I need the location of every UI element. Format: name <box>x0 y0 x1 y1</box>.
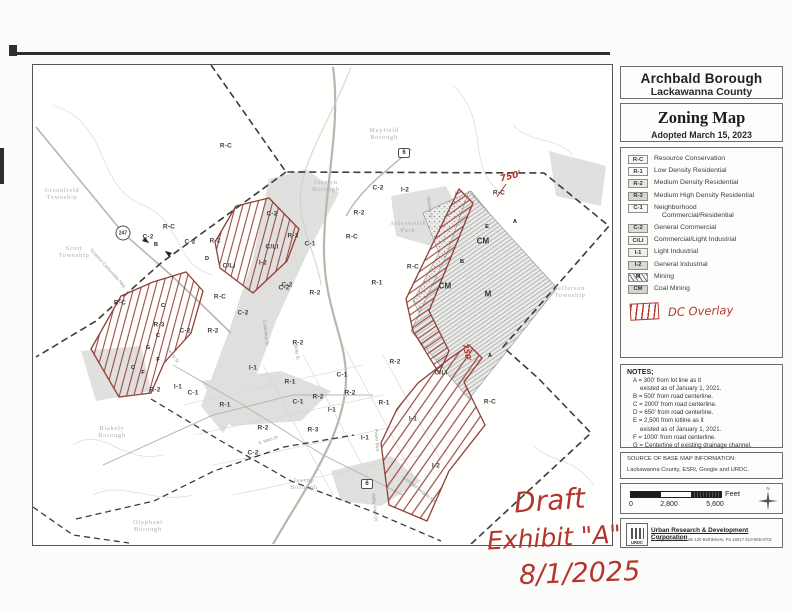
legend-label: Resource Conservation <box>654 155 725 164</box>
legend-item: R-3Medium High Density Residential <box>628 192 782 201</box>
legend-item: I-2General Industrial <box>628 261 782 270</box>
legend-swatch: R-2 <box>628 179 648 188</box>
scale-panel: Feet 02,8005,600 N <box>620 483 783 514</box>
borough-title: Archbald Borough <box>621 71 782 86</box>
legend-label: NeighborhoodCommercial/Residential <box>654 204 734 221</box>
credit-address: 51 Highland Ave Suite 120 Bethlehem, Pa … <box>651 537 772 542</box>
legend-label: Low Density Residential <box>654 167 727 176</box>
north-arrow-icon: N <box>757 486 779 512</box>
legend-swatch: M <box>628 273 648 282</box>
scale-bar <box>630 491 722 498</box>
scale-unit: Feet <box>725 489 740 498</box>
base-map-drawing <box>33 65 612 544</box>
note-line: A = 300' from lot line as it <box>627 377 782 385</box>
urdc-logo: URDC <box>626 523 648 546</box>
legend-label: Coal Mining <box>654 285 690 294</box>
scale-bar-segment <box>631 492 660 497</box>
legend-swatch: R-3 <box>628 192 648 201</box>
dc-overlay-label: DC Overlay <box>668 303 734 319</box>
adoption-date: Adopted March 15, 2023 <box>621 130 782 140</box>
map-canvas <box>32 64 613 546</box>
scale-tick: 5,600 <box>706 501 724 508</box>
notes-lines: A = 300' from lot line as itexisted as o… <box>627 377 782 450</box>
source-heading: SOURCE OF BASE MAP INFORMATION: <box>627 456 782 462</box>
legend-item: I-1Light Industrial <box>628 248 782 257</box>
urdc-logo-text: URDC <box>631 540 643 545</box>
legend-swatch: R-C <box>628 155 648 164</box>
legend-list: R-CResource ConservationR-1Low Density R… <box>628 155 782 294</box>
legend-item: C/LICommercial/Light Industrial <box>628 236 782 245</box>
source-panel: SOURCE OF BASE MAP INFORMATION: Lackawan… <box>620 452 783 479</box>
legend-swatch: C-2 <box>628 224 648 233</box>
notes-panel: NOTES; A = 300' from lot line as itexist… <box>620 364 783 448</box>
legend-label: General Industrial <box>654 261 708 270</box>
compass-star-icon <box>758 491 778 511</box>
legend-swatch: R-1 <box>628 167 648 176</box>
scan-artifact-corner-mark <box>9 45 17 56</box>
legend-label: Mining <box>654 273 674 282</box>
handwritten-date: 8/1/2025 <box>518 556 640 591</box>
note-line: D = 650' from road centerline. <box>627 409 782 417</box>
legend-item: R-2Medium Density Residential <box>628 179 782 188</box>
notes-heading: NOTES; <box>627 369 782 376</box>
legend-swatch: CM <box>628 285 648 294</box>
dc-overlay-row: DC Overlay <box>628 303 782 320</box>
legend-item: MMining <box>628 273 782 282</box>
scanned-zoning-map-page: Archbald Borough Lackawanna County Zonin… <box>0 0 792 612</box>
note-line: F = 1000' from road centerline. <box>627 434 782 442</box>
scan-artifact-edge-mark <box>0 148 4 184</box>
note-line: existed as of January 1, 2021. <box>627 385 782 393</box>
legend-swatch: I-1 <box>628 248 648 257</box>
legend-label: Medium Density Residential <box>654 179 738 188</box>
legend-item: R-1Low Density Residential <box>628 167 782 176</box>
map-title-panel: Zoning Map Adopted March 15, 2023 <box>620 103 783 142</box>
legend-label: Light Industrial <box>654 248 698 257</box>
dc-overlay-hatch-sketch <box>630 302 660 320</box>
urdc-building-icon <box>631 528 644 539</box>
legend-swatch: I-2 <box>628 261 648 270</box>
legend-label: Medium High Density Residential <box>654 192 754 201</box>
source-text: Lackawanna County, ESRI, Google and URDC… <box>627 467 782 473</box>
note-line: C = 2000' from road centerline. <box>627 401 782 409</box>
legend-label: Commercial/Light Industrial <box>654 236 736 245</box>
map-title: Zoning Map <box>621 108 782 128</box>
legend-panel: R-CResource ConservationR-1Low Density R… <box>620 147 783 358</box>
note-line: G = Centerline of existing drainage chan… <box>627 442 782 450</box>
legend-item: C-1NeighborhoodCommercial/Residential <box>628 204 782 221</box>
scale-bar-segment <box>660 492 691 497</box>
legend-swatch: C/LI <box>628 236 648 245</box>
credit-panel: URDC Urban Research & Development Corpor… <box>620 518 783 548</box>
county-subtitle: Lackawanna County <box>621 86 782 98</box>
scale-bar-segment <box>692 492 721 497</box>
legend-item: CMCoal Mining <box>628 285 782 294</box>
legend-label: General Commercial <box>654 224 716 233</box>
scale-tick: 2,800 <box>660 501 678 508</box>
legend-item: R-CResource Conservation <box>628 155 782 164</box>
note-line: E = 2,500 from lotline as it <box>627 417 782 425</box>
legend-swatch: C-1 <box>628 204 648 213</box>
scan-artifact-topline <box>13 52 610 55</box>
note-line: B = 500' from road centerline. <box>627 393 782 401</box>
legend-item: C-2General Commercial <box>628 224 782 233</box>
note-line: existed as of January 1, 2021. <box>627 426 782 434</box>
title-panel: Archbald Borough Lackawanna County <box>620 66 783 99</box>
scale-tick: 0 <box>629 501 633 508</box>
